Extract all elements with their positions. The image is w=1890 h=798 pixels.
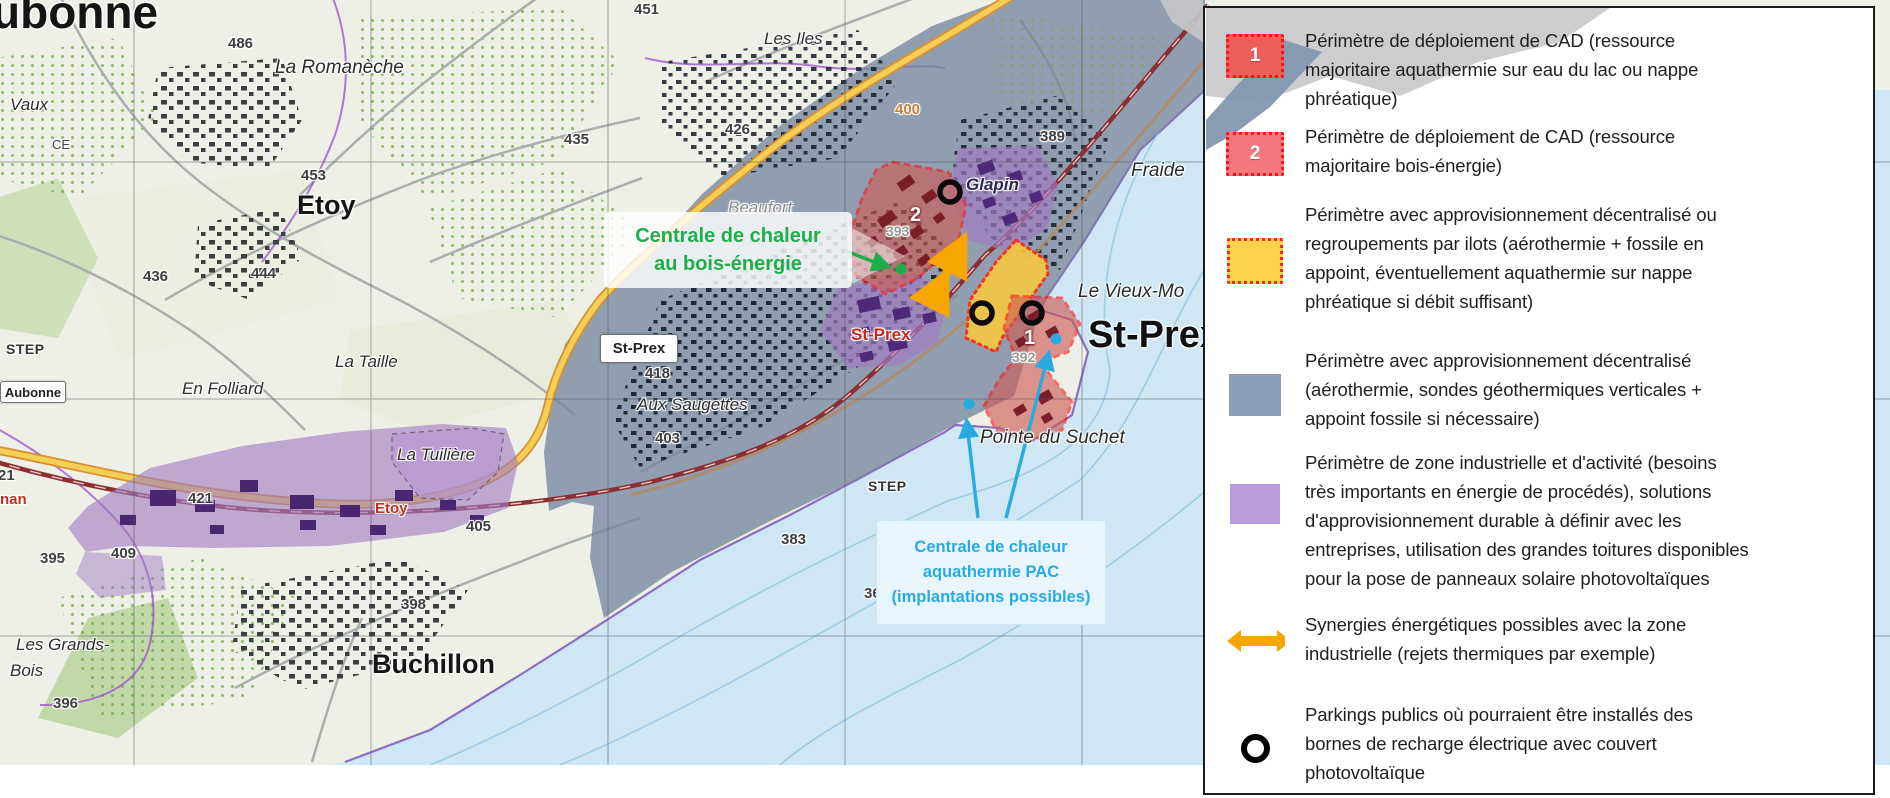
legend-item-text: Périmètre de déploiement de CAD (ressour…: [1305, 122, 1865, 180]
legend-item-1: 1Périmètre de déploiement de CAD (ressou…: [1225, 26, 1865, 113]
label-la-romaneche: La Romanèche: [275, 58, 404, 78]
parking-circle-icon: [1241, 734, 1270, 763]
label-396: 396: [53, 696, 78, 712]
label-bois: Bois: [10, 662, 43, 680]
legend-item-2: 2Périmètre de déploiement de CAD (ressou…: [1225, 122, 1865, 180]
label-st-prex-red: St-Prex: [851, 326, 911, 344]
label-en-folliard: En Folliard: [182, 380, 263, 398]
label-435: 435: [564, 132, 589, 148]
label-la-tuiliere: La Tuilière: [397, 446, 475, 464]
label-buchillon-town: Buchillon: [372, 650, 495, 678]
label-436: 436: [143, 269, 168, 285]
label-st-prex-town: St-Prex: [1088, 316, 1221, 356]
label-383: 383: [781, 532, 806, 548]
label-21: 21: [0, 468, 15, 484]
label-400: 400: [895, 102, 920, 118]
sign-st-prex: St-Prex: [600, 334, 678, 363]
label-393: 393: [886, 224, 909, 239]
energy-planning-map-page: ubonneVauxCE486La Romanèche451Les Iles42…: [0, 0, 1890, 798]
label-395: 395: [40, 551, 65, 567]
legend-item-text: Périmètre de déploiement de CAD (ressour…: [1305, 26, 1865, 113]
zone-1-number: 1: [1024, 328, 1035, 349]
legend-item-6: Synergies énergétiques possibles avec la…: [1225, 610, 1865, 668]
legend-item-text: Parkings publics où pourraient être inst…: [1305, 700, 1865, 787]
cad-swatch-2-icon: 2: [1226, 132, 1284, 176]
purple-zone-swatch-icon: [1230, 484, 1280, 524]
label-451: 451: [634, 2, 659, 18]
legend-item-4: Périmètre avec approvisionnement décentr…: [1225, 346, 1865, 433]
label-etoy-road: Etoy: [375, 501, 408, 517]
label-453: 453: [301, 168, 326, 184]
label-aux-saugettes: Aux Saugettes: [637, 396, 748, 414]
label-426: 426: [725, 122, 750, 138]
label-418: 418: [645, 366, 670, 382]
label-ce: CE: [52, 138, 70, 152]
zone-2-number: 2: [910, 205, 921, 226]
label-les-grands: Les Grands-: [16, 636, 110, 654]
legend-item-text: Périmètre avec approvisionnement décentr…: [1305, 346, 1865, 433]
wood-heat-plant-callout: Centrale de chaleur au bois-énergie: [604, 212, 852, 288]
cad-swatch-1-icon: 1: [1226, 34, 1284, 78]
legend-item-3: Périmètre avec approvisionnement décentr…: [1225, 200, 1865, 316]
label-etoy-town: Etoy: [297, 191, 356, 219]
aquathermie-plant-callout: Centrale de chaleur aquathermie PAC (imp…: [876, 520, 1106, 625]
label-step-west: STEP: [6, 342, 45, 357]
label-405: 405: [466, 519, 491, 535]
label-fraide: Fraide: [1131, 161, 1185, 181]
yellow-zone-swatch-icon: [1227, 238, 1283, 284]
slate-zone-swatch-icon: [1229, 374, 1281, 416]
label-le-vieux-moulin: Le Vieux-Mo: [1078, 282, 1184, 302]
sign-aubonne: Aubonne: [0, 381, 66, 403]
label-389: 389: [1040, 129, 1065, 145]
legend-item-text: Périmètre de zone industrielle et d'acti…: [1305, 448, 1865, 593]
label-pointe-du-suchet: Pointe du Suchet: [980, 428, 1125, 448]
label-vaux: Vaux: [10, 96, 48, 114]
wood-plant-dot: [896, 264, 907, 275]
label-392: 392: [1012, 350, 1035, 365]
label-step-east: STEP: [868, 479, 907, 494]
legend-item-5: Périmètre de zone industrielle et d'acti…: [1225, 448, 1865, 593]
legend-item-7: Parkings publics où pourraient être inst…: [1225, 700, 1865, 787]
legend-item-text: Périmètre avec approvisionnement décentr…: [1305, 200, 1865, 316]
legend-item-text: Synergies énergétiques possibles avec la…: [1305, 610, 1865, 668]
label-la-taille: La Taille: [335, 353, 398, 371]
label-421: 421: [188, 491, 213, 507]
label-409: 409: [111, 546, 136, 562]
label-glapin: Glapin: [966, 176, 1019, 194]
label-les-iles: Les Iles: [764, 30, 823, 48]
label-444: 444: [251, 266, 276, 282]
label-aubonne-town: ubonne: [0, 0, 158, 36]
label-403: 403: [655, 431, 680, 447]
legend-content: 1Périmètre de déploiement de CAD (ressou…: [1203, 6, 1875, 795]
double-arrow-icon: [1225, 626, 1285, 656]
label-398: 398: [401, 597, 426, 613]
label-allaman: nan: [0, 492, 27, 508]
label-486: 486: [228, 36, 253, 52]
